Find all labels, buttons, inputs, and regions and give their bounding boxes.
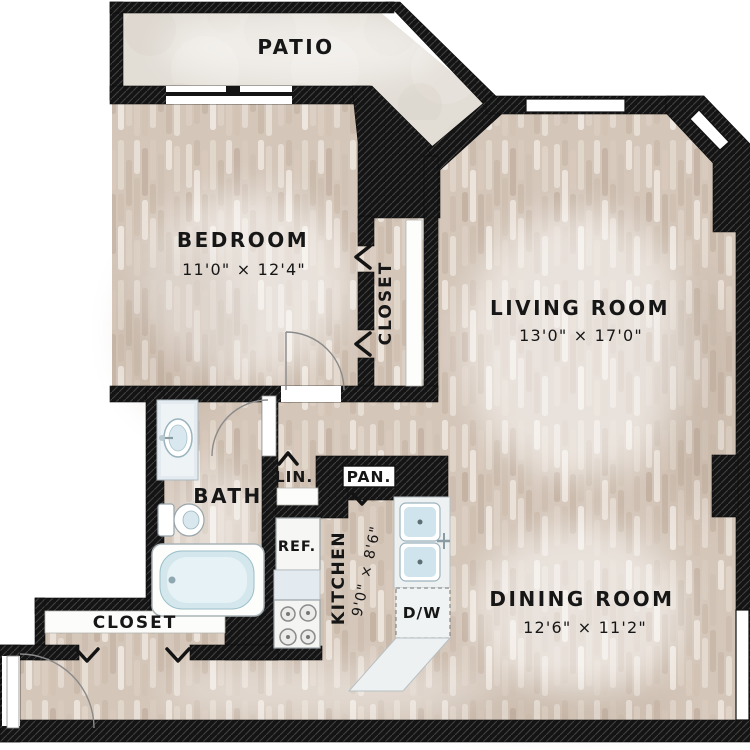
sliding-door-panel-right [240, 92, 294, 96]
closet-left-wall-a [358, 216, 374, 246]
closet-right-wall [424, 156, 438, 396]
entry-closet-label: CLOSET [93, 613, 178, 633]
bath-door-leaf [262, 396, 276, 456]
dining-window [736, 610, 749, 720]
patio-label: PATIO [257, 35, 334, 59]
stove-fixture [274, 600, 320, 648]
bedroom-closet-label: CLOSET [376, 261, 396, 346]
entry-closet-bottom-stub-right [190, 645, 278, 660]
bathtub-fixture [152, 544, 264, 616]
closet-left-wall-b [358, 272, 374, 330]
sliding-door-panel-left [166, 92, 228, 96]
bedroom-door-opening [281, 386, 341, 402]
patio-top-wall [110, 2, 394, 13]
bedroom-label: BEDROOM [177, 228, 309, 252]
bottom-wall [0, 720, 750, 742]
bedroom-dims: 11'0" × 12'4" [182, 260, 306, 279]
pantry-label: PAN. [347, 468, 392, 486]
floor-plan: PATIO BEDROOM 11'0" × 12'4" CLOSET LIVIN… [0, 0, 750, 750]
sliding-door-stub [226, 86, 240, 96]
kitchen-counter [274, 570, 320, 600]
floor-plan-svg: PATIO BEDROOM 11'0" × 12'4" CLOSET LIVIN… [0, 0, 750, 750]
right-wall-pilaster [712, 455, 738, 517]
patio-left-wall [110, 2, 123, 100]
bedroom-closet-shelf [406, 220, 422, 386]
dishwasher-label: D/W [403, 604, 442, 622]
kitchen-sink-fixture [394, 497, 450, 588]
vanity-sink-fixture [157, 400, 198, 480]
living-window [526, 99, 625, 112]
linen-shelf [277, 488, 318, 505]
toilet-fixture [158, 504, 204, 536]
entry-door-leaf [7, 656, 19, 728]
dining-room-label: DINING ROOM [489, 587, 674, 611]
linen-bottom-wall [276, 505, 318, 519]
living-room-label: LIVING ROOM [490, 296, 670, 320]
kitchen-label: KITCHEN [329, 531, 349, 625]
bath-label: BATH [193, 484, 263, 508]
linen-label: LIN. [275, 468, 314, 486]
dining-room-dims: 12'6" × 11'2" [523, 618, 647, 637]
refrigerator-label: REF. [278, 539, 316, 555]
living-room-dims: 13'0" × 17'0" [519, 326, 643, 345]
